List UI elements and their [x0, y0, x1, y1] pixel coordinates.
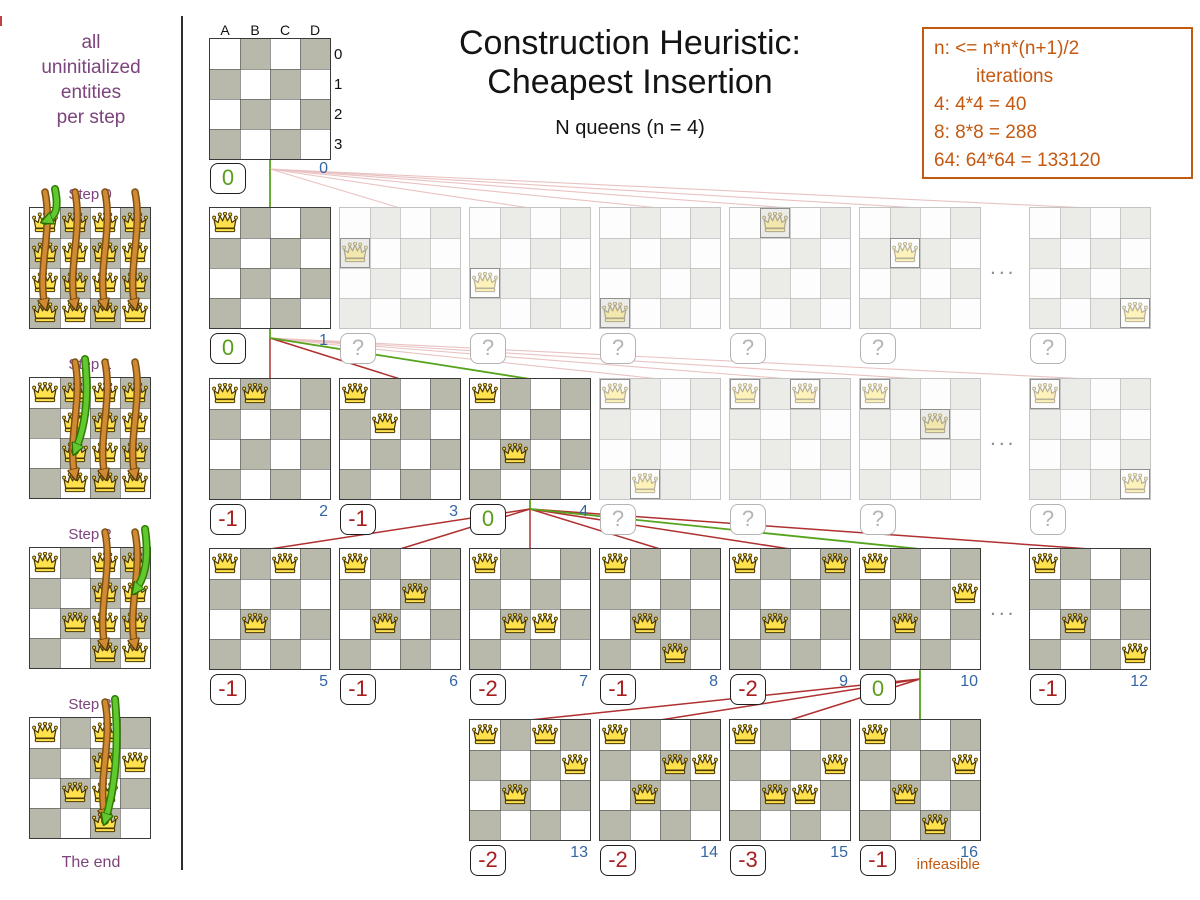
construction-heuristic-diagram: { "header": { "title_line1": "Constructi…: [0, 0, 1200, 900]
board-cell: [860, 810, 890, 840]
board-cell: [890, 409, 920, 439]
queen-icon: [62, 302, 88, 323]
board-cell: [950, 298, 980, 328]
board-cell: [730, 439, 760, 469]
queen-icon: [892, 242, 918, 263]
queen-icon: [922, 814, 948, 835]
score-badge: -2: [600, 845, 636, 876]
board-cell: [1090, 439, 1120, 469]
board-cell: [560, 238, 590, 268]
board-cell: [730, 750, 760, 780]
board-iteration-unvisited: [1029, 378, 1151, 500]
page-title: Construction Heuristic: Cheapest Inserti…: [340, 24, 920, 148]
board-cell: [400, 379, 430, 409]
iteration-label: 10: [944, 673, 978, 691]
board-cell: [560, 268, 590, 298]
board-cell: [820, 810, 850, 840]
grid-line: [730, 810, 850, 811]
board-cell: [660, 298, 690, 328]
board-iteration-unvisited: [859, 207, 981, 329]
board-cell: [730, 579, 760, 609]
grid-line: [820, 720, 821, 840]
board-cell: [560, 439, 590, 469]
queen-icon: [472, 724, 498, 745]
iteration-label: 7: [554, 673, 588, 691]
grid-line: [860, 609, 980, 610]
board-cell: [270, 639, 300, 669]
title-line-1: Construction Heuristic:: [340, 24, 920, 63]
board-cell: [340, 609, 370, 639]
board-cell: [340, 298, 370, 328]
grid-line: [950, 379, 951, 499]
board-cell: [760, 409, 790, 439]
board-cell: [860, 750, 890, 780]
queen-icon: [122, 302, 148, 323]
root-board: [209, 38, 331, 160]
score-badge: ?: [860, 504, 896, 535]
board-iteration-15: [729, 719, 851, 841]
board-cell: [1120, 409, 1150, 439]
board-cell: [890, 549, 920, 579]
queen-icon: [502, 784, 528, 805]
board-cell: [240, 268, 270, 298]
board-cell: [890, 720, 920, 750]
score-badge: ?: [600, 333, 636, 364]
row-label: 0: [334, 46, 342, 63]
board-cell: [920, 439, 950, 469]
board-cell: [920, 469, 950, 499]
board-cell: [730, 298, 760, 328]
queen-icon: [122, 752, 148, 773]
board-cell: [690, 409, 720, 439]
board-cell: [270, 579, 300, 609]
score-badge: ?: [340, 333, 376, 364]
board-cell: [860, 639, 890, 669]
board-cell: [820, 579, 850, 609]
board-cell: [690, 549, 720, 579]
queen-icon: [62, 612, 88, 633]
queen-icon: [62, 782, 88, 803]
board-cell: [430, 469, 460, 499]
section-divider: [181, 16, 183, 870]
board-cell: [760, 579, 790, 609]
board-cell: [470, 750, 500, 780]
board-cell: [210, 129, 240, 159]
board-cell: [1120, 379, 1150, 409]
board-cell: [1030, 579, 1060, 609]
board-cell: [1090, 549, 1120, 579]
queen-icon: [62, 382, 88, 403]
board-cell: [860, 238, 890, 268]
grid-line: [470, 639, 590, 640]
board-cell: [660, 579, 690, 609]
board-cell: [660, 238, 690, 268]
board-cell: [1090, 469, 1120, 499]
board-cell: [340, 439, 370, 469]
board-cell: [210, 579, 240, 609]
grid-line: [1030, 268, 1150, 269]
edge-artifact: [0, 16, 2, 26]
board-cell: [470, 439, 500, 469]
board-cell: [890, 268, 920, 298]
board-cell: [950, 208, 980, 238]
grid-line: [120, 208, 121, 328]
board-cell: [790, 439, 820, 469]
grid-line: [300, 208, 301, 328]
iteration-label: 12: [1114, 673, 1148, 691]
grid-line: [600, 780, 720, 781]
board-cell: [600, 810, 630, 840]
score-badge: -2: [730, 674, 766, 705]
board-cell: [600, 238, 630, 268]
board-cell: [760, 639, 790, 669]
board-cell: [60, 808, 90, 838]
board-cell: [690, 780, 720, 810]
score-badge: ?: [1030, 504, 1066, 535]
queen-icon: [602, 724, 628, 745]
board-cell: [470, 409, 500, 439]
board-cell: [790, 579, 820, 609]
board-cell: [1090, 379, 1120, 409]
grid-line: [560, 720, 561, 840]
board-cell: [270, 439, 300, 469]
board-cell: [530, 469, 560, 499]
grid-line: [600, 639, 720, 640]
queen-icon: [122, 242, 148, 263]
score-badge: -1: [210, 504, 246, 535]
queen-icon: [1032, 383, 1058, 404]
board-iteration-unvisited: [339, 207, 461, 329]
board-cell: [820, 208, 850, 238]
board-cell: [430, 639, 460, 669]
queen-icon: [862, 383, 888, 404]
board-cell: [950, 810, 980, 840]
board-iteration-5: [209, 548, 331, 670]
queen-icon: [792, 383, 818, 404]
tree-edge: [400, 509, 530, 549]
board-cell: [890, 439, 920, 469]
board-cell: [300, 238, 330, 268]
board-cell: [1090, 208, 1120, 238]
board-cell: [560, 780, 590, 810]
queen-icon: [62, 442, 88, 463]
board-cell: [1090, 409, 1120, 439]
column-label: D: [300, 22, 330, 38]
ellipsis-more-boards: ...: [990, 597, 1017, 621]
board-cell: [660, 439, 690, 469]
tree-edge: [270, 169, 660, 208]
board-cell: [1120, 208, 1150, 238]
board-cell: [430, 579, 460, 609]
board-cell: [500, 409, 530, 439]
board-cell: [340, 208, 370, 238]
score-badge: -1: [600, 674, 636, 705]
board-cell: [530, 409, 560, 439]
grid-line: [860, 639, 980, 640]
board-cell: [760, 720, 790, 750]
board-cell: [340, 579, 370, 609]
board-cell: [270, 469, 300, 499]
board-cell: [470, 298, 500, 328]
board-cell: [1120, 238, 1150, 268]
info-line-5: 64: 64*64 = 133120: [934, 147, 1181, 175]
board-cell: [730, 639, 760, 669]
board-cell: [300, 99, 330, 129]
queen-icon: [1122, 302, 1148, 323]
board-cell: [630, 409, 660, 439]
board-cell: [530, 579, 560, 609]
grid-line: [560, 379, 561, 499]
grid-line: [950, 549, 951, 669]
board-cell: [1090, 238, 1120, 268]
queen-icon: [92, 612, 118, 633]
board-cell: [660, 810, 690, 840]
row-label: 2: [334, 106, 342, 123]
board-cell: [530, 298, 560, 328]
board-cell: [210, 409, 240, 439]
board-iteration-unvisited: [859, 378, 981, 500]
grid-line: [950, 208, 951, 328]
board-cell: [210, 639, 240, 669]
queen-icon: [92, 642, 118, 663]
board-cell: [790, 298, 820, 328]
board-cell: [920, 639, 950, 669]
board-cell: [1090, 639, 1120, 669]
score-badge: -1: [210, 674, 246, 705]
board-cell: [600, 639, 630, 669]
row-label: 1: [334, 76, 342, 93]
board-cell: [600, 268, 630, 298]
board-cell: [660, 720, 690, 750]
board-cell: [730, 208, 760, 238]
board-cell: [730, 238, 760, 268]
step-board-0: [29, 207, 151, 329]
board-cell: [300, 469, 330, 499]
iteration-label: 15: [814, 844, 848, 862]
queen-icon: [632, 613, 658, 634]
board-cell: [1060, 379, 1090, 409]
grid-line: [690, 208, 691, 328]
board-cell: [370, 379, 400, 409]
score-badge: ?: [730, 504, 766, 535]
board-iteration-9: [729, 548, 851, 670]
queen-icon: [732, 383, 758, 404]
queen-icon: [732, 553, 758, 574]
grid-line: [300, 549, 301, 669]
grid-line: [210, 639, 330, 640]
board-cell: [790, 208, 820, 238]
board-cell: [950, 379, 980, 409]
grid-line: [210, 469, 330, 470]
board-cell: [630, 750, 660, 780]
intro-line-4: per step: [8, 105, 174, 130]
board-cell: [690, 810, 720, 840]
board-cell: [920, 609, 950, 639]
queen-icon: [92, 242, 118, 263]
board-cell: [430, 379, 460, 409]
board-cell: [530, 268, 560, 298]
grid-line: [210, 439, 330, 440]
board-cell: [1090, 579, 1120, 609]
step-label: Step 2: [30, 526, 150, 543]
queen-icon: [92, 752, 118, 773]
grid-line: [730, 639, 850, 640]
board-cell: [760, 439, 790, 469]
score-badge: -1: [1030, 674, 1066, 705]
board-cell: [660, 268, 690, 298]
board-cell: [1090, 298, 1120, 328]
grid-line: [210, 268, 330, 269]
board-cell: [240, 238, 270, 268]
grid-line: [690, 720, 691, 840]
score-badge: 0: [860, 674, 896, 705]
grid-line: [860, 780, 980, 781]
board-cell: [470, 609, 500, 639]
queen-icon: [602, 553, 628, 574]
iteration-label: 5: [294, 673, 328, 691]
board-cell: [950, 409, 980, 439]
board-cell: [760, 469, 790, 499]
queen-icon: [92, 212, 118, 233]
grid-line: [30, 778, 150, 779]
queen-icon: [242, 613, 268, 634]
board-cell: [530, 439, 560, 469]
board-cell: [1030, 469, 1060, 499]
step-board-1: [29, 377, 151, 499]
board-cell: [920, 579, 950, 609]
board-cell: [630, 379, 660, 409]
board-cell: [600, 579, 630, 609]
grid-line: [120, 548, 121, 668]
board-cell: [560, 720, 590, 750]
queen-icon: [122, 272, 148, 293]
queen-icon: [822, 754, 848, 775]
board-cell: [470, 469, 500, 499]
board-cell: [1030, 238, 1060, 268]
queen-icon: [122, 612, 148, 633]
tree-edge: [790, 679, 920, 720]
score-badge: ?: [730, 333, 766, 364]
queen-icon: [92, 272, 118, 293]
board-cell: [560, 609, 590, 639]
score-badge: ?: [600, 504, 636, 535]
board-cell: [400, 639, 430, 669]
board-cell: [860, 439, 890, 469]
queen-icon: [122, 582, 148, 603]
board-cell: [60, 718, 90, 748]
board-cell: [1030, 208, 1060, 238]
board-cell: [240, 208, 270, 238]
column-label: C: [270, 22, 300, 38]
queen-icon: [122, 552, 148, 573]
board-cell: [950, 238, 980, 268]
queen-icon: [32, 552, 58, 573]
queen-icon: [92, 722, 118, 743]
board-cell: [500, 469, 530, 499]
board-cell: [470, 208, 500, 238]
queen-icon: [792, 784, 818, 805]
board-iteration-13: [469, 719, 591, 841]
board-cell: [1030, 609, 1060, 639]
queen-icon: [122, 642, 148, 663]
board-cell: [300, 639, 330, 669]
grid-line: [300, 39, 301, 159]
board-cell: [890, 379, 920, 409]
board-cell: [950, 639, 980, 669]
board-iteration-8: [599, 548, 721, 670]
board-cell: [760, 750, 790, 780]
board-cell: [430, 609, 460, 639]
board-cell: [340, 409, 370, 439]
queen-icon: [602, 302, 628, 323]
board-cell: [370, 208, 400, 238]
board-cell: [430, 439, 460, 469]
board-cell: [790, 720, 820, 750]
grid-line: [340, 268, 460, 269]
board-iteration-unvisited: [729, 378, 851, 500]
score-badge: -3: [730, 845, 766, 876]
board-cell: [270, 298, 300, 328]
grid-line: [860, 469, 980, 470]
board-cell: [920, 720, 950, 750]
board-cell: [30, 638, 60, 668]
board-cell: [1120, 549, 1150, 579]
board-cell: [820, 268, 850, 298]
the-end-label: The end: [30, 854, 152, 872]
board-cell: [60, 748, 90, 778]
board-cell: [560, 579, 590, 609]
board-cell: [1120, 439, 1150, 469]
score-badge: -1: [860, 845, 896, 876]
board-cell: [300, 379, 330, 409]
board-cell: [270, 409, 300, 439]
grid-line: [470, 780, 590, 781]
sidebar-intro-text: all uninitialized entities per step: [8, 30, 174, 130]
board-cell: [120, 718, 150, 748]
queen-icon: [862, 553, 888, 574]
board-cell: [630, 439, 660, 469]
board-cell: [210, 439, 240, 469]
board-cell: [730, 810, 760, 840]
board-cell: [690, 720, 720, 750]
grid-line: [210, 129, 330, 130]
queen-icon: [502, 613, 528, 634]
board-cell: [630, 208, 660, 238]
board-cell: [600, 469, 630, 499]
board-cell: [400, 549, 430, 579]
board-cell: [210, 39, 240, 69]
iteration-label: 8: [684, 673, 718, 691]
board-cell: [820, 409, 850, 439]
board-cell: [560, 409, 590, 439]
board-cell: [820, 379, 850, 409]
board-cell: [660, 469, 690, 499]
board-cell: [240, 69, 270, 99]
step-label: Step 1: [30, 356, 150, 373]
queen-icon: [472, 383, 498, 404]
score-badge: -1: [340, 504, 376, 535]
board-cell: [400, 439, 430, 469]
board-cell: [300, 268, 330, 298]
grid-line: [730, 609, 850, 610]
board-cell: [920, 750, 950, 780]
board-cell: [730, 609, 760, 639]
grid-line: [30, 638, 150, 639]
board-cell: [430, 549, 460, 579]
step-board-2: [29, 547, 151, 669]
queen-icon: [952, 754, 978, 775]
queen-icon: [732, 724, 758, 745]
